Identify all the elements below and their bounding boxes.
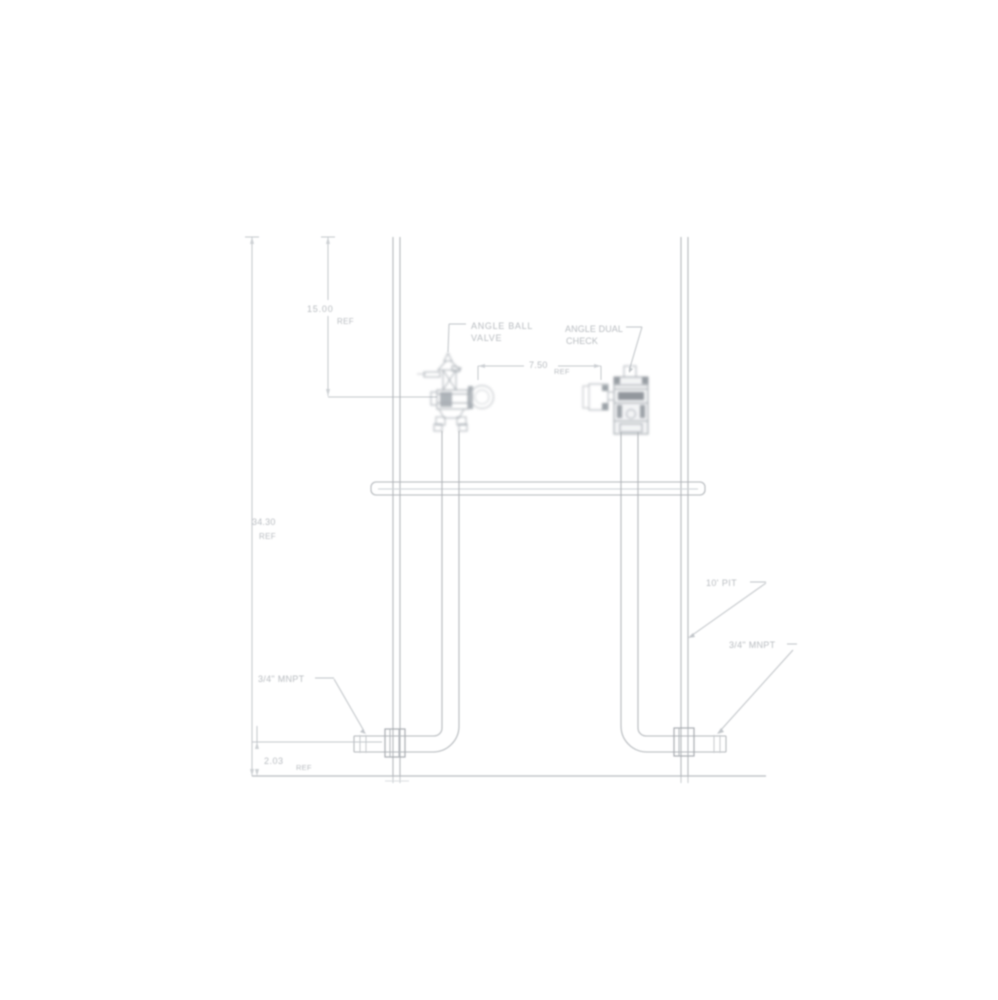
svg-text:REF: REF [337, 317, 354, 326]
svg-text:CHECK: CHECK [566, 336, 598, 346]
svg-text:15.00: 15.00 [307, 304, 334, 314]
svg-text:REF: REF [296, 763, 312, 772]
svg-text:7.50: 7.50 [529, 360, 548, 370]
svg-text:3/4" MNPT: 3/4" MNPT [258, 674, 305, 684]
svg-text:10' PIT: 10' PIT [706, 578, 737, 588]
svg-text:ANGLE DUAL: ANGLE DUAL [565, 324, 623, 334]
svg-text:REF: REF [259, 532, 276, 541]
svg-text:REF: REF [554, 367, 570, 376]
svg-text:2.03: 2.03 [264, 756, 284, 766]
svg-text:34.30: 34.30 [252, 517, 276, 527]
svg-text:3/4" MNPT: 3/4" MNPT [729, 640, 776, 650]
svg-text:VALVE: VALVE [471, 333, 502, 343]
svg-text:ANGLE BALL: ANGLE BALL [471, 321, 533, 331]
